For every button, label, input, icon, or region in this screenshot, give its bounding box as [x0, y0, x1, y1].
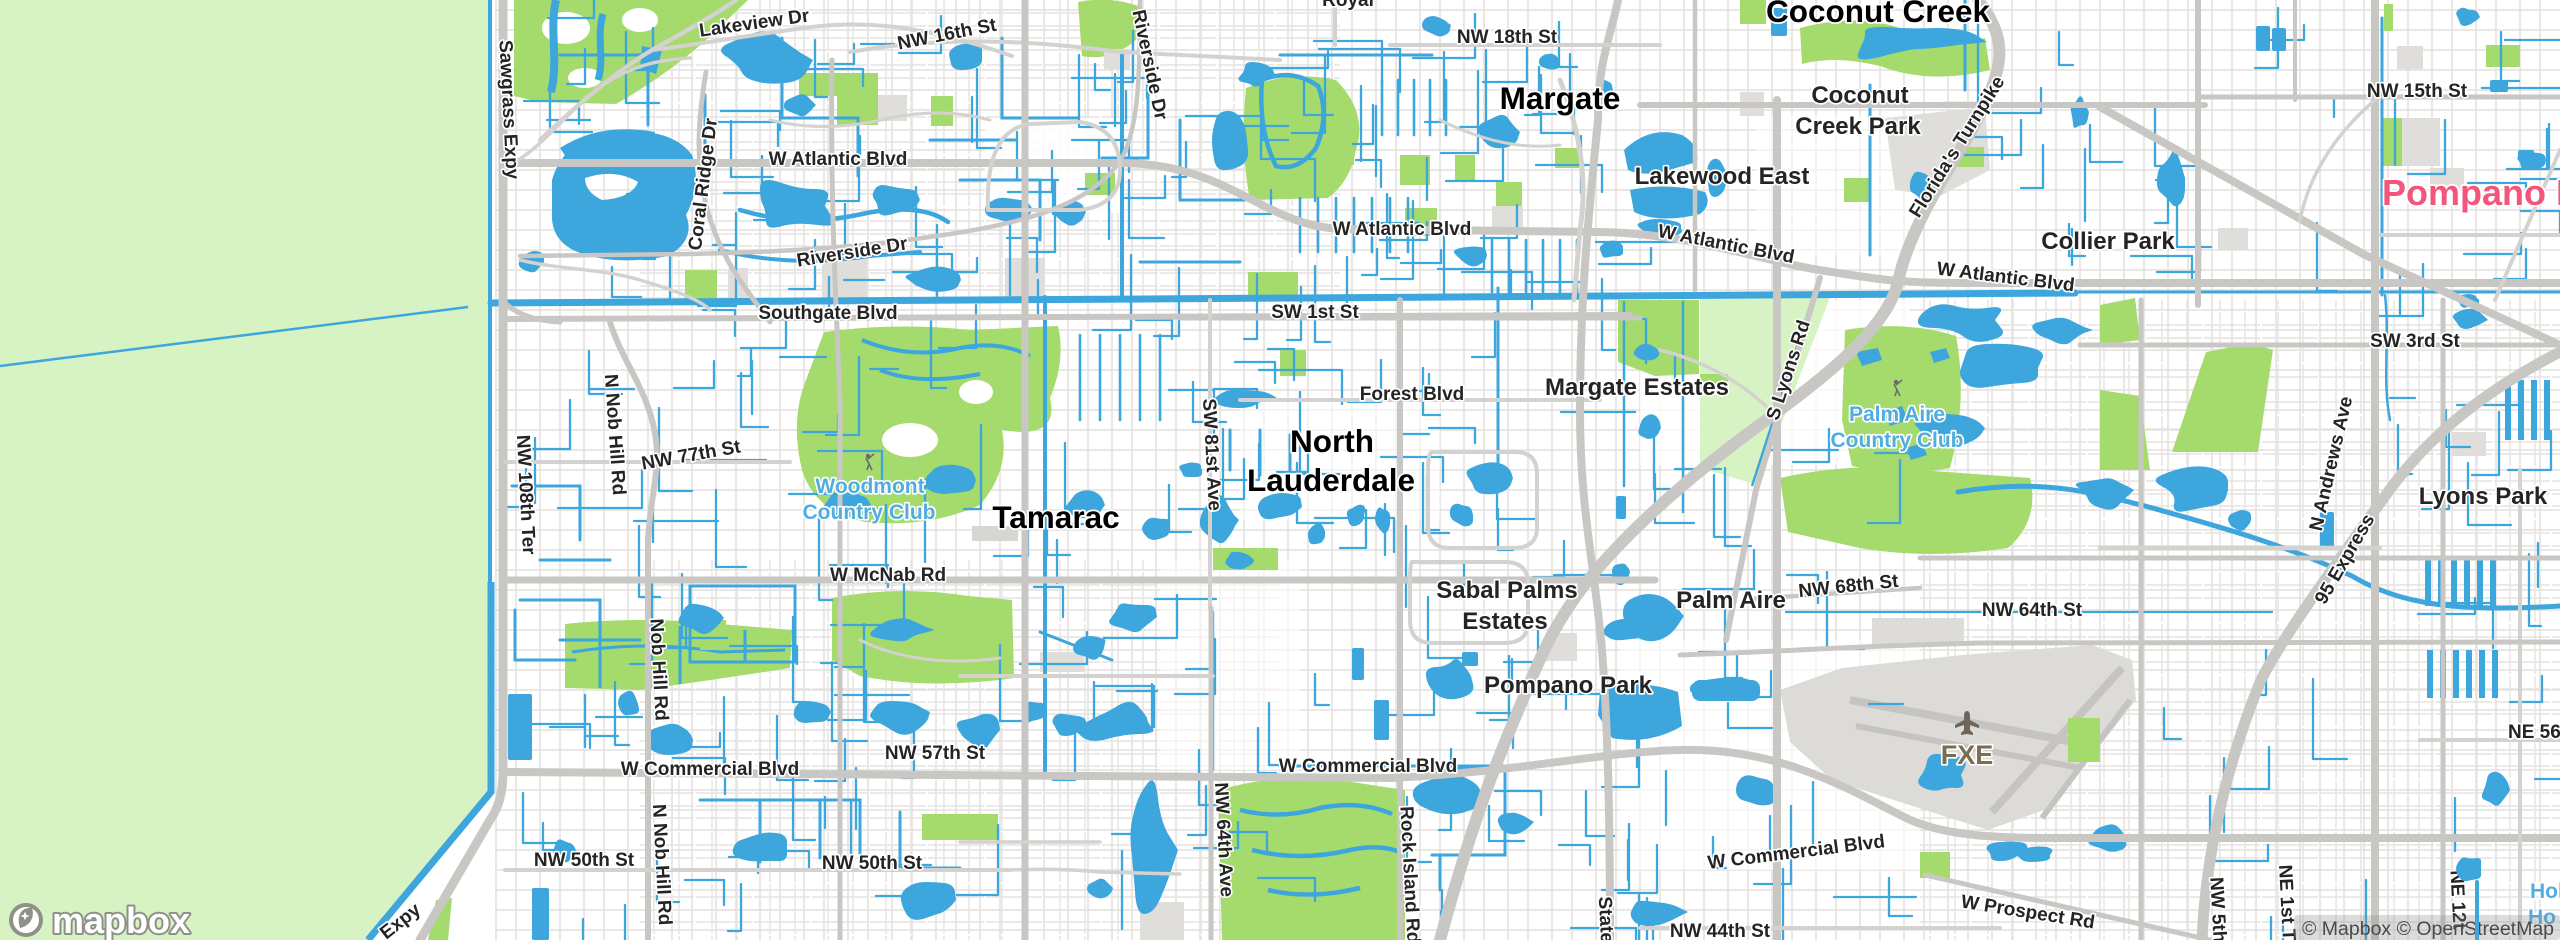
svg-text:Collier Park: Collier Park [2041, 228, 2175, 255]
svg-text:Palm Aire: Palm Aire [1849, 403, 1945, 426]
svg-text:Country Club: Country Club [803, 501, 936, 524]
svg-text:Coconut: Coconut [1811, 82, 1908, 109]
svg-text:Palm Aire: Palm Aire [1676, 587, 1786, 614]
svg-text:Margate Estates: Margate Estates [1545, 374, 1729, 401]
svg-text:NW 5th: NW 5th [2205, 876, 2229, 940]
svg-text:Creek Park: Creek Park [1795, 113, 1921, 140]
svg-text:NW 44th St: NW 44th St [1670, 921, 1771, 940]
svg-text:NW 64th St: NW 64th St [1982, 600, 2083, 621]
svg-text:NE 56: NE 56 [2508, 722, 2560, 743]
svg-text:SW 3rd St: SW 3rd St [2370, 331, 2460, 352]
svg-text:Lakewood East: Lakewood East [1635, 163, 1810, 190]
svg-text:NW 50th St: NW 50th St [822, 853, 923, 874]
svg-text:Holy: Holy [2530, 880, 2560, 903]
svg-text:SW 1st St: SW 1st St [1271, 302, 1359, 323]
svg-text:Tamarac: Tamarac [992, 499, 1119, 535]
svg-text:Pompano B: Pompano B [2382, 172, 2560, 213]
svg-text:Southgate Blvd: Southgate Blvd [758, 303, 897, 324]
svg-text:W Atlantic Blvd: W Atlantic Blvd [1333, 219, 1472, 240]
svg-text:State: State [1594, 896, 1617, 940]
svg-text:W Commercial Blvd: W Commercial Blvd [621, 759, 799, 780]
svg-text:NW 15th St: NW 15th St [2367, 81, 2468, 102]
svg-text:FXE: FXE [1941, 740, 1994, 770]
svg-text:© Mapbox © OpenStreetMap: © Mapbox © OpenStreetMap [2302, 918, 2554, 940]
svg-text:Lauderdale: Lauderdale [1247, 462, 1415, 498]
svg-text:North: North [1290, 423, 1374, 459]
svg-text:mapbox: mapbox [52, 900, 190, 940]
svg-text:Country Club: Country Club [1831, 429, 1964, 452]
svg-text:W Commercial Blvd: W Commercial Blvd [1279, 756, 1457, 777]
svg-text:NW 18th St: NW 18th St [1457, 27, 1558, 48]
svg-text:Woodmont: Woodmont [815, 475, 924, 498]
svg-text:Estates: Estates [1462, 608, 1547, 635]
svg-text:Sabal Palms: Sabal Palms [1436, 577, 1577, 604]
svg-text:W Atlantic Blvd: W Atlantic Blvd [769, 149, 908, 170]
svg-text:Margate: Margate [1500, 80, 1621, 116]
svg-text:Forest Blvd: Forest Blvd [1360, 384, 1465, 405]
svg-text:Royal: Royal [1322, 0, 1374, 11]
svg-text:NW 50th St: NW 50th St [534, 850, 635, 871]
svg-text:Pompano Park: Pompano Park [1484, 672, 1653, 699]
svg-text:Lyons Park: Lyons Park [2419, 483, 2548, 510]
svg-text:NW 57th St: NW 57th St [885, 743, 986, 764]
svg-text:Coconut Creek: Coconut Creek [1766, 0, 1991, 29]
svg-text:W McNab Rd: W McNab Rd [830, 565, 946, 586]
